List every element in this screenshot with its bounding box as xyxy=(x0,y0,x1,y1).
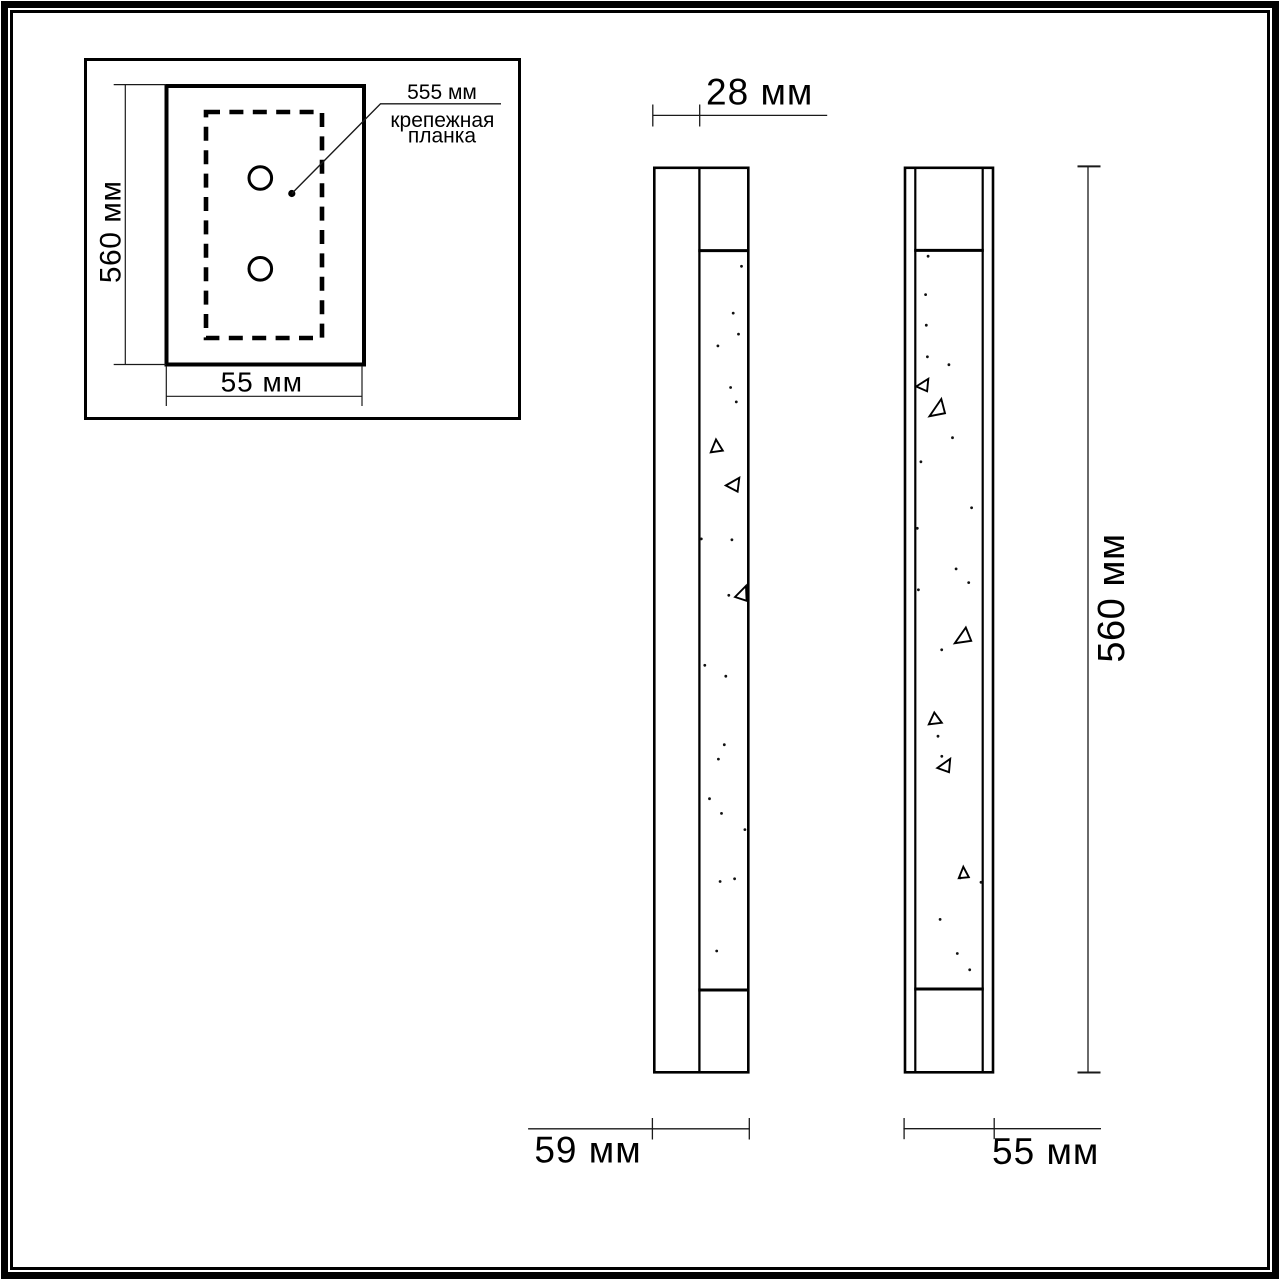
svg-text:55 мм: 55 мм xyxy=(992,1131,1099,1172)
svg-text:59 мм: 59 мм xyxy=(534,1130,641,1171)
svg-text:555 мм: 555 мм xyxy=(407,81,477,104)
svg-text:560 мм: 560 мм xyxy=(95,180,128,283)
svg-text:560 мм: 560 мм xyxy=(1091,533,1133,662)
svg-text:28 мм: 28 мм xyxy=(706,72,813,113)
svg-text:планка: планка xyxy=(408,124,477,147)
svg-text:55 мм: 55 мм xyxy=(221,367,303,398)
